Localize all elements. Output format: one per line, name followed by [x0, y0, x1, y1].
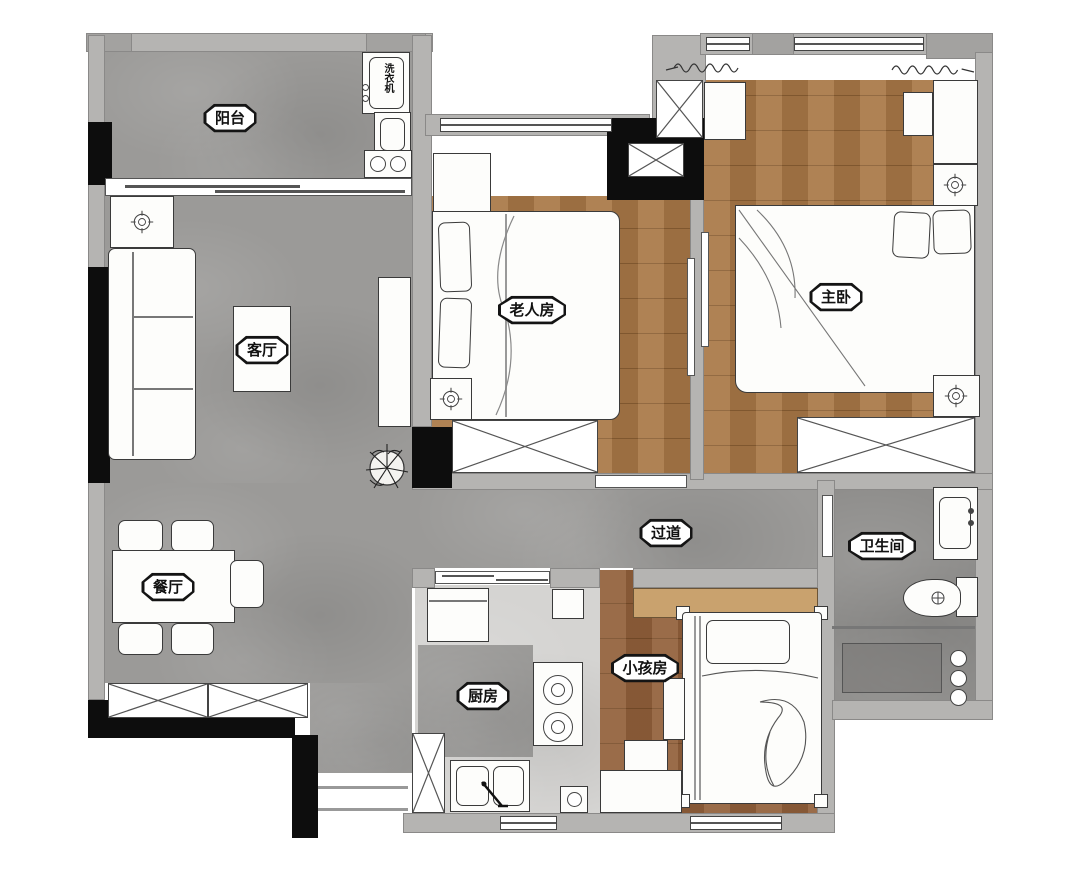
- sofa-seat-line: [133, 388, 193, 390]
- kids-nightstand: [663, 678, 685, 740]
- bathroom-door-leaf: [822, 495, 833, 557]
- left-wall-black-upper: [88, 122, 112, 185]
- kids-pillow: [706, 620, 790, 664]
- elder-lamp-icon: [437, 385, 465, 413]
- tv-cabinet: [378, 277, 411, 427]
- shower-shelf-circle: [950, 650, 967, 667]
- kids-bottom-window: [690, 816, 782, 830]
- washer-knob: [362, 95, 369, 102]
- master-pillow: [892, 211, 931, 259]
- curtain-squiggle: [890, 60, 976, 78]
- balcony-sliding-door-line: [215, 190, 405, 193]
- faucet-dot: [968, 520, 974, 526]
- entry-black-wall: [292, 735, 318, 838]
- bath-bottom-wall: [832, 700, 993, 720]
- floor-plan: 洗衣机: [0, 0, 1080, 874]
- elder-pillow: [438, 221, 472, 292]
- kitchen-faucet: [478, 778, 512, 812]
- dining-chair: [118, 623, 163, 655]
- stove-burner: [551, 720, 565, 734]
- elder-wardrobe: [452, 420, 598, 473]
- faucet-dot: [968, 508, 974, 514]
- tv-wall-black-block: [412, 427, 452, 488]
- kids-top-wall: [633, 568, 832, 588]
- shower-shelf-circle: [950, 670, 967, 687]
- master-nightstand: [704, 82, 746, 140]
- room-label-dining: 餐厅: [141, 573, 194, 602]
- kitchen-corner-counter: [552, 589, 584, 619]
- hallway-floor: [412, 488, 817, 568]
- plant: [358, 436, 414, 494]
- bathroom-sink-basin: [939, 497, 971, 549]
- dining-chair: [171, 520, 214, 552]
- shoe-cabinet: [208, 683, 308, 718]
- master-nightstand: [903, 92, 933, 136]
- master-cabinet-column: [933, 80, 978, 164]
- fridge-line: [429, 600, 487, 602]
- kitchen-tall-cabinet: [412, 733, 445, 813]
- dining-chair: [230, 560, 264, 608]
- foyer-floor: [310, 683, 412, 773]
- kids-blanket-fold: [700, 662, 820, 802]
- washing-machine-label: 洗衣机: [382, 63, 392, 93]
- balcony-right-wall: [412, 35, 432, 427]
- master-door-leaf: [701, 232, 709, 347]
- balcony-counter-circle: [370, 156, 386, 172]
- master-window-right: [794, 37, 924, 51]
- sofa-back-line: [132, 252, 134, 456]
- sofa-seat-line: [133, 316, 193, 318]
- fridge: [427, 588, 489, 642]
- elder-nightstand: [433, 153, 491, 213]
- toilet-flush-icon: [928, 588, 948, 608]
- elder-pillow: [438, 297, 472, 368]
- master-window-left: [706, 37, 750, 51]
- master-bench-lamp-icon: [942, 382, 970, 410]
- washer-knob: [362, 84, 369, 91]
- duct-shaft-box: [656, 80, 703, 138]
- room-label-master: 主卧: [809, 283, 862, 312]
- master-pillow: [932, 209, 972, 254]
- kids-desk: [600, 770, 682, 813]
- kitchen-sliding-door-line: [496, 579, 548, 581]
- master-door-leaf: [687, 258, 695, 376]
- stove-burner: [551, 683, 565, 697]
- room-label-living: 客厅: [235, 336, 288, 365]
- dining-chair: [118, 520, 163, 552]
- shoe-cabinet: [108, 683, 208, 718]
- balcony-counter-circle: [390, 156, 406, 172]
- shaft-box: [628, 143, 684, 177]
- curtain-squiggle: [664, 58, 748, 76]
- entry-threshold-line: [318, 786, 408, 789]
- kitchen-sliding-door: [435, 571, 550, 584]
- dining-chair: [171, 623, 214, 655]
- entry-threshold-line: [318, 808, 408, 811]
- master-wardrobe: [797, 417, 975, 473]
- balcony-sink-basin: [380, 118, 405, 151]
- floor-drain-circle: [567, 792, 582, 807]
- room-label-bath: 卫生间: [848, 532, 916, 561]
- sofa: [108, 248, 196, 460]
- kitchen-top-wall-left: [412, 568, 435, 588]
- room-label-elder: 老人房: [498, 296, 566, 325]
- master-dresser-lamp-icon: [941, 171, 969, 199]
- room-label-balcony: 阳台: [203, 104, 256, 133]
- bathroom-divider: [832, 626, 975, 629]
- side-table-lamp-icon: [128, 208, 156, 236]
- balcony-sliding-door-line: [125, 185, 300, 188]
- room-label-kitchen: 厨房: [456, 682, 509, 711]
- kitchen-top-wall-right: [550, 568, 600, 588]
- top-wall-pillar: [752, 33, 794, 55]
- shower-tray: [842, 643, 942, 693]
- room-label-kids: 小孩房: [611, 654, 679, 683]
- kids-bed-frame-line: [694, 616, 696, 800]
- shower-shelf-circle: [950, 689, 967, 706]
- kitchen-bottom-window: [500, 816, 557, 830]
- elder-sliding-door: [595, 475, 687, 488]
- kitchen-sliding-door-line: [442, 575, 494, 577]
- room-label-hallway: 过道: [639, 519, 692, 548]
- elder-window: [440, 118, 612, 132]
- left-wall-black-lower: [88, 267, 110, 483]
